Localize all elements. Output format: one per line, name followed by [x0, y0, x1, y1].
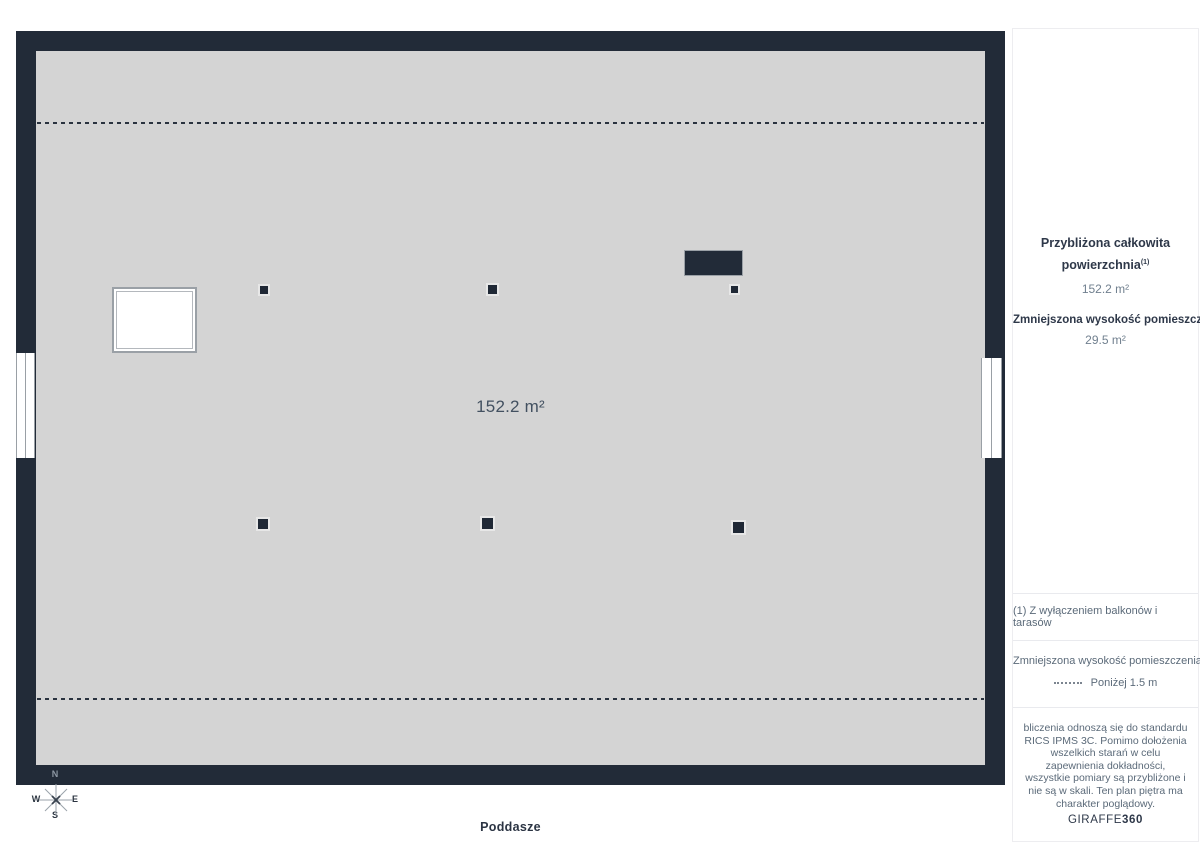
room-area-label: 152.2 m²	[36, 397, 985, 417]
floorplan-page: 152.2 m² N W E S Poddasze	[0, 0, 1200, 849]
legend-heading: Zmniejszona wysokość pomieszczenia	[1013, 655, 1198, 667]
window-mullion	[25, 353, 26, 458]
reduced-height-line-bottom	[37, 698, 984, 700]
disclaimer-text: bliczenia odnoszą się do standardu RICS …	[1023, 722, 1188, 810]
window-mullion	[991, 358, 992, 458]
compass-star-icon	[37, 781, 75, 819]
compass-rose: N W E S	[20, 764, 92, 826]
giraffe360-logo: GIRAFFE360	[1013, 814, 1198, 826]
logo-brand-text: GIRAFFE	[1068, 814, 1122, 826]
reduced-height-title: Zmniejszona wysokość pomieszczenia	[1013, 314, 1198, 326]
logo-suffix-text: 360	[1122, 814, 1143, 826]
plan-floor: 152.2 m²	[36, 51, 985, 765]
chimney-block	[684, 250, 743, 276]
wall-window-right	[981, 358, 1002, 458]
skylight-window	[112, 287, 197, 353]
legend-item: Poniżej 1.5 m	[1013, 677, 1198, 689]
footnote-marker: (1)	[1141, 259, 1150, 266]
skylight-window-frame	[116, 291, 193, 349]
total-area-value: 152.2 m²	[1013, 282, 1198, 296]
pillar	[258, 519, 268, 529]
legend-item-label: Poniżej 1.5 m	[1091, 677, 1158, 689]
pillar	[482, 518, 493, 529]
pillar	[733, 522, 744, 533]
footnote-text: (1) Z wyłączeniem balkonów i tarasów	[1013, 593, 1198, 640]
disclaimer-section: bliczenia odnoszą się do standardu RICS …	[1013, 707, 1198, 841]
floor-name-label: Poddasze	[16, 820, 1005, 834]
compass-north-label: N	[48, 769, 62, 779]
total-area-title-text: Przybliżona całkowita powierzchnia	[1041, 236, 1170, 272]
info-sidebar: Przybliżona całkowita powierzchnia(1) 15…	[1012, 28, 1199, 842]
pillar	[488, 285, 497, 294]
area-summary: Przybliżona całkowita powierzchnia(1) 15…	[1013, 234, 1198, 347]
legend-section: Zmniejszona wysokość pomieszczenia Poniż…	[1013, 640, 1198, 707]
plan-outer-wall: 152.2 m²	[16, 31, 1005, 785]
pillar	[731, 286, 738, 293]
reduced-height-line-top	[37, 122, 984, 124]
pillar	[260, 286, 268, 294]
wall-window-left	[16, 353, 35, 458]
dashed-line-symbol	[1054, 682, 1082, 684]
total-area-title: Przybliżona całkowita powierzchnia(1)	[1013, 234, 1198, 275]
reduced-height-value: 29.5 m²	[1013, 333, 1198, 347]
